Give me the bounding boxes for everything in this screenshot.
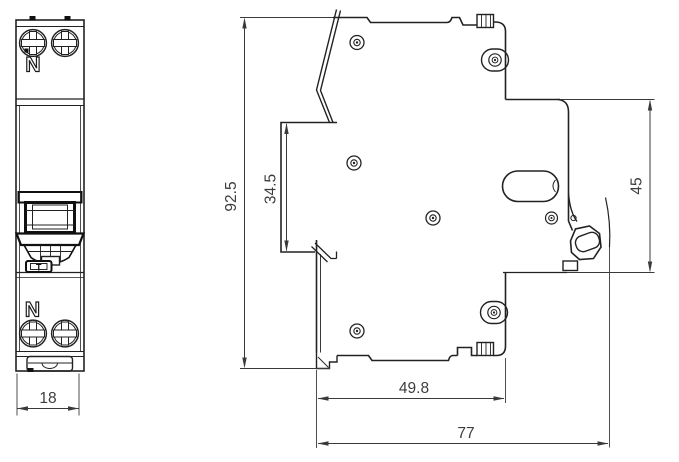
terminal-screw <box>52 320 79 347</box>
terminal-screw <box>20 30 47 57</box>
side-view-body <box>240 10 610 369</box>
test-button-label: T <box>36 262 42 272</box>
overall-height-dimension-label: 92.5 <box>223 181 240 211</box>
terminal-screw <box>52 30 79 57</box>
rivet <box>546 212 558 224</box>
mounting-tab <box>482 49 509 71</box>
overall-depth-dimension-label: 77 <box>457 425 474 442</box>
rivet <box>350 36 364 50</box>
mounting-tab <box>481 302 508 324</box>
din-clip-latch <box>546 194 610 271</box>
neutral-label-top: N <box>25 54 40 77</box>
side-view: 92.5 34.5 45 49.8 <box>223 10 655 449</box>
technical-drawing: N T N <box>0 0 679 462</box>
test-button: T <box>26 261 52 272</box>
dimension-18: 18 <box>17 374 79 416</box>
width-dimension-label: 18 <box>39 390 56 407</box>
dimension-49-8: 49.8 <box>317 358 506 448</box>
din-rail-recess <box>281 123 337 263</box>
rivet <box>426 211 440 225</box>
front-view: N T N <box>16 16 84 416</box>
rivet <box>350 324 364 338</box>
drawing-canvas: N T N <box>0 0 679 462</box>
recess-height-dimension-label: 34.5 <box>263 174 280 204</box>
top-tick-mark <box>65 16 71 21</box>
rivet <box>347 156 361 170</box>
rivet <box>489 54 501 66</box>
dimension-45: 45 <box>503 100 655 273</box>
top-tick-mark <box>30 16 36 21</box>
oval-slot <box>503 171 559 202</box>
front-offset-dimension-label: 45 <box>629 177 646 194</box>
neutral-label-bottom: N <box>25 299 40 322</box>
dimension-34-5: 34.5 <box>263 123 289 252</box>
rivet <box>488 306 500 318</box>
terminal-screw <box>20 320 47 347</box>
body-depth-dimension-label: 49.8 <box>399 380 429 397</box>
